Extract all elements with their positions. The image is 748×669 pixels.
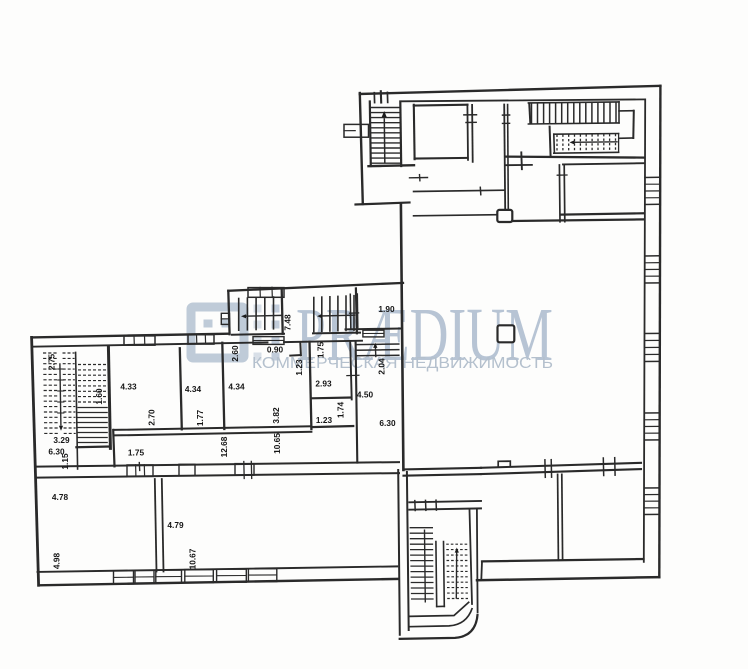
svg-text:1.23: 1.23	[294, 359, 304, 376]
svg-text:4.98: 4.98	[52, 553, 62, 570]
svg-text:12.68: 12.68	[219, 436, 229, 457]
svg-text:3.29: 3.29	[53, 435, 70, 445]
svg-text:2.93: 2.93	[315, 379, 332, 389]
svg-text:1.90: 1.90	[378, 304, 395, 314]
svg-text:1.60: 1.60	[94, 388, 104, 405]
svg-text:4.34: 4.34	[185, 384, 202, 394]
svg-text:2.04: 2.04	[377, 358, 387, 375]
svg-text:3.82: 3.82	[271, 407, 281, 424]
svg-text:10.67: 10.67	[188, 548, 198, 569]
svg-text:4.78: 4.78	[52, 492, 69, 502]
svg-text:4.50: 4.50	[357, 390, 374, 400]
svg-text:1.74: 1.74	[336, 402, 346, 419]
svg-text:4.33: 4.33	[120, 382, 137, 392]
svg-text:4.34: 4.34	[228, 382, 245, 392]
svg-text:1.77: 1.77	[195, 410, 205, 427]
svg-text:7.48: 7.48	[283, 314, 293, 331]
svg-text:6.30: 6.30	[379, 418, 396, 428]
svg-text:2.70: 2.70	[147, 409, 157, 426]
svg-text:2.60: 2.60	[230, 345, 240, 362]
svg-text:1.23: 1.23	[316, 415, 333, 425]
svg-text:1.75: 1.75	[128, 448, 145, 458]
svg-text:10.65: 10.65	[272, 433, 282, 454]
svg-text:2.75: 2.75	[47, 354, 57, 371]
svg-text:4.79: 4.79	[167, 520, 184, 530]
svg-text:1.75: 1.75	[316, 342, 326, 359]
svg-text:1.15: 1.15	[60, 453, 70, 470]
svg-text:0.90: 0.90	[267, 345, 284, 355]
